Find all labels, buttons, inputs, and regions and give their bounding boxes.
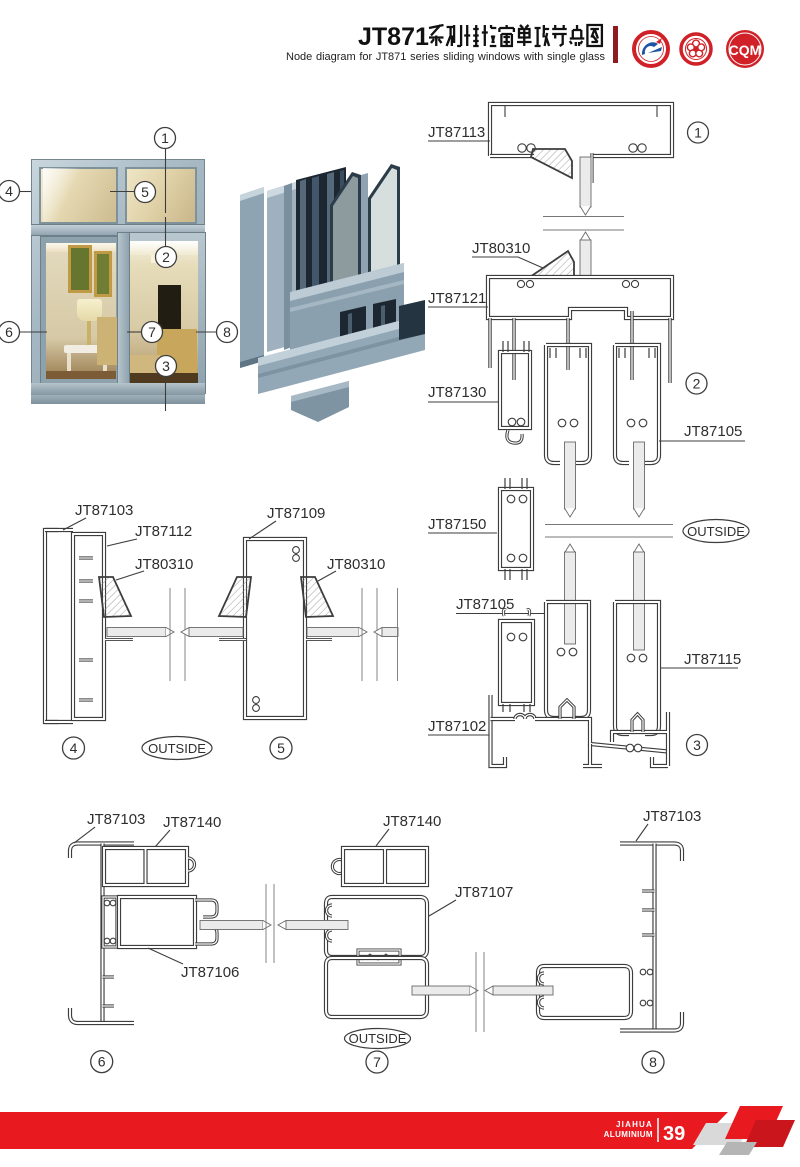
svg-text:JT87103: JT87103 <box>75 502 133 519</box>
svg-text:JT87105: JT87105 <box>684 423 742 440</box>
svg-text:JT87109: JT87109 <box>267 505 325 522</box>
svg-text:3: 3 <box>693 737 701 753</box>
svg-text:JT87103: JT87103 <box>87 811 145 828</box>
svg-text:8: 8 <box>649 1054 657 1070</box>
svg-text:JT87130: JT87130 <box>428 384 486 401</box>
svg-text:JT80310: JT80310 <box>135 556 193 573</box>
svg-text:JT87112: JT87112 <box>135 523 192 540</box>
svg-text:JT87115: JT87115 <box>684 651 741 668</box>
svg-text:2: 2 <box>693 376 701 392</box>
svg-text:ALUMINIUM: ALUMINIUM <box>604 1130 653 1139</box>
svg-text:JT80310: JT80310 <box>472 240 530 257</box>
svg-text:JT87121: JT87121 <box>428 290 486 307</box>
svg-text:JT87140: JT87140 <box>163 814 221 831</box>
svg-text:4: 4 <box>70 740 78 756</box>
svg-text:4: 4 <box>5 183 13 199</box>
svg-text:JT87107: JT87107 <box>455 884 513 901</box>
svg-text:JT87150: JT87150 <box>428 516 486 533</box>
svg-text:OUTSIDE: OUTSIDE <box>148 741 206 756</box>
svg-text:1: 1 <box>161 130 169 146</box>
svg-text:JT87113: JT87113 <box>428 124 485 141</box>
svg-text:JT87106: JT87106 <box>181 964 239 981</box>
svg-text:5: 5 <box>141 184 149 200</box>
svg-text:8: 8 <box>223 324 231 340</box>
svg-text:6: 6 <box>5 324 13 340</box>
svg-text:JT87140: JT87140 <box>383 813 441 830</box>
svg-text:5: 5 <box>277 740 285 756</box>
svg-text:JT80310: JT80310 <box>327 556 385 573</box>
svg-text:6: 6 <box>98 1054 106 1070</box>
svg-text:39: 39 <box>663 1123 685 1145</box>
svg-text:2: 2 <box>162 249 170 265</box>
svg-text:7: 7 <box>373 1054 381 1070</box>
svg-text:1: 1 <box>694 125 702 141</box>
svg-text:JIAHUA: JIAHUA <box>616 1120 653 1129</box>
svg-text:JT87102: JT87102 <box>428 718 486 735</box>
svg-text:3: 3 <box>162 358 170 374</box>
svg-text:OUTSIDE: OUTSIDE <box>349 1031 407 1046</box>
svg-text:JT87103: JT87103 <box>643 808 701 825</box>
svg-text:7: 7 <box>148 324 156 340</box>
svg-text:OUTSIDE: OUTSIDE <box>687 524 745 539</box>
